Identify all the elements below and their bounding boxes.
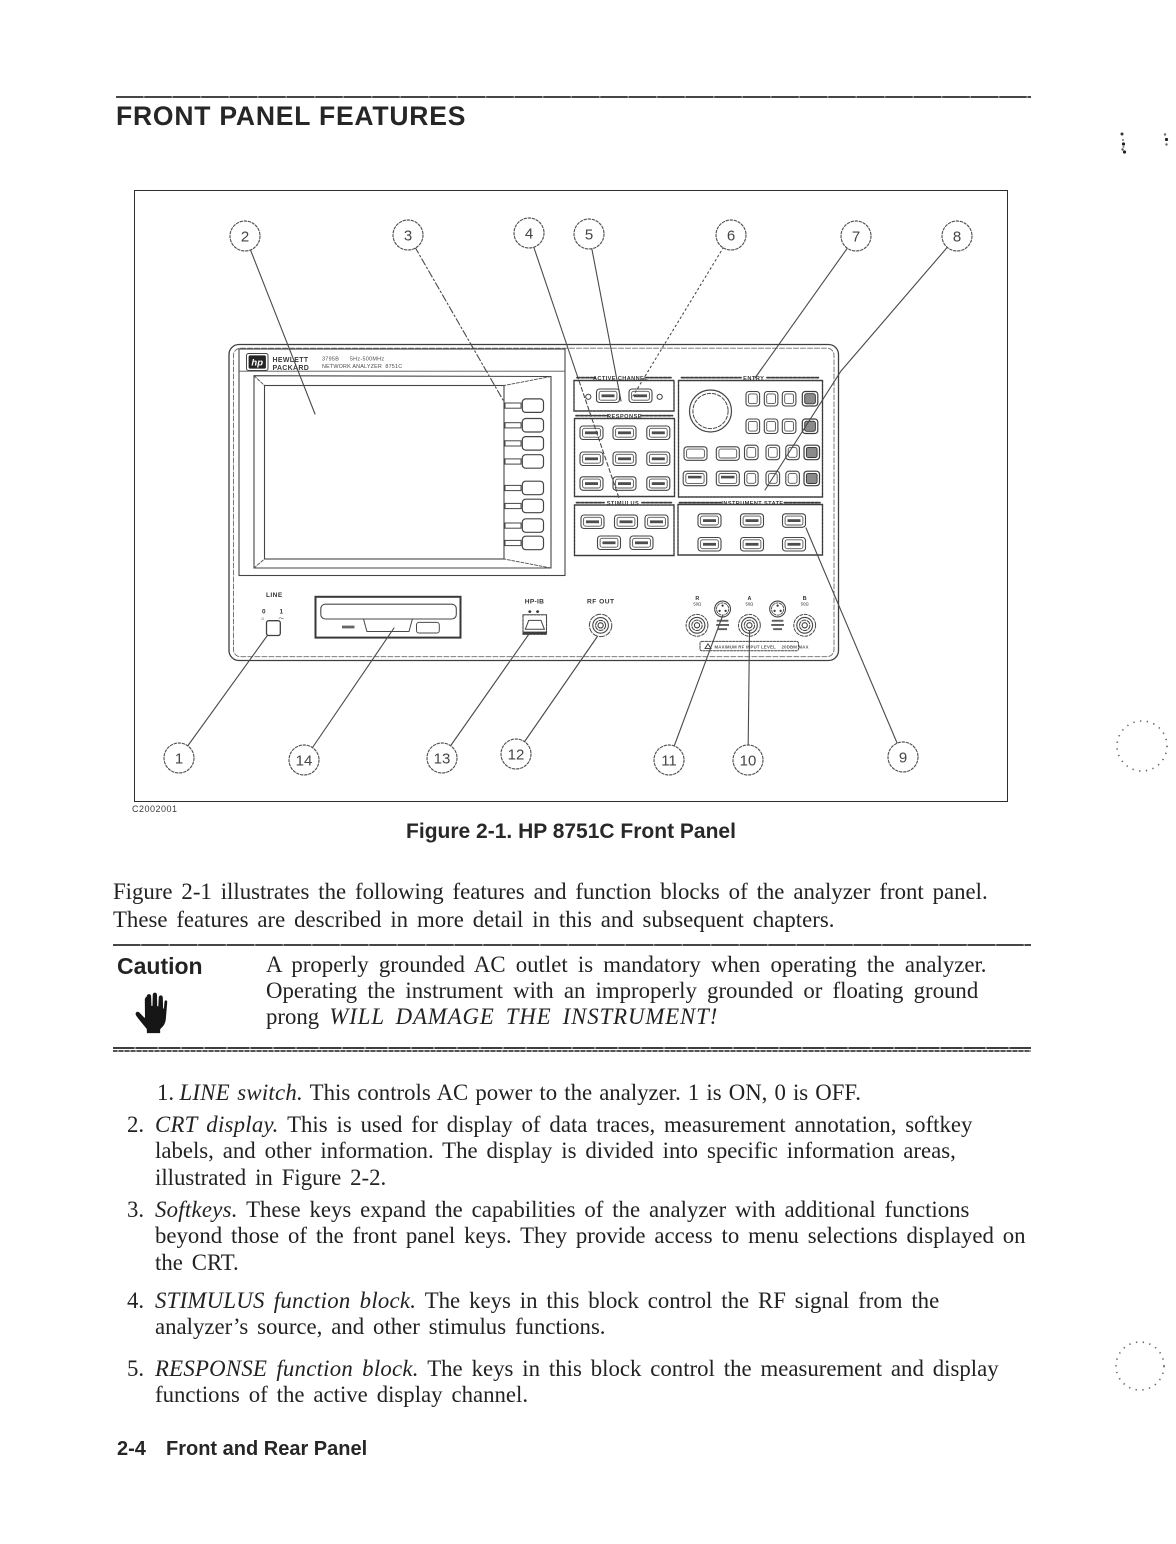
svg-text:13: 13 bbox=[434, 751, 451, 768]
svg-text:3: 3 bbox=[404, 228, 412, 245]
svg-text:50Ω: 50Ω bbox=[801, 601, 809, 606]
svg-text:50Ω: 50Ω bbox=[746, 601, 754, 606]
svg-text:PACKARD: PACKARD bbox=[273, 365, 310, 372]
svg-text:4: 4 bbox=[525, 226, 533, 243]
svg-text:MAXIMUM RF INPUT LEVEL 20DB: MAXIMUM RF INPUT LEVEL 20DBM MAX bbox=[715, 644, 809, 649]
svg-text:○: ○ bbox=[261, 617, 264, 623]
svg-text:1: 1 bbox=[175, 751, 183, 768]
svg-text:10: 10 bbox=[740, 753, 757, 770]
svg-text:50Ω: 50Ω bbox=[693, 601, 701, 606]
svg-text:14: 14 bbox=[296, 753, 313, 770]
svg-text:11: 11 bbox=[661, 753, 677, 770]
svg-text:NETWORK ANALYZER 8751C: NETWORK ANALYZER 8751C bbox=[322, 364, 402, 370]
svg-text:6: 6 bbox=[727, 228, 735, 245]
svg-text:7: 7 bbox=[852, 229, 860, 246]
svg-text:9: 9 bbox=[899, 750, 907, 767]
svg-text:HP-IB: HP-IB bbox=[525, 599, 544, 606]
svg-text:LINE: LINE bbox=[266, 592, 283, 599]
svg-text:STIMULUS: STIMULUS bbox=[607, 501, 640, 507]
svg-text:RF OUT: RF OUT bbox=[587, 599, 615, 606]
svg-text:8: 8 bbox=[953, 229, 961, 246]
svg-text:hp: hp bbox=[251, 358, 263, 369]
svg-text:2: 2 bbox=[241, 229, 249, 246]
svg-text:3795B 5Hz-500MHz: 3795B 5Hz-500MHz bbox=[322, 357, 384, 363]
svg-text:5: 5 bbox=[585, 227, 593, 244]
svg-text:HEWLETT: HEWLETT bbox=[273, 357, 309, 364]
svg-text:12: 12 bbox=[508, 747, 525, 764]
svg-text:0: 0 bbox=[262, 609, 266, 616]
svg-text:1: 1 bbox=[280, 609, 284, 616]
